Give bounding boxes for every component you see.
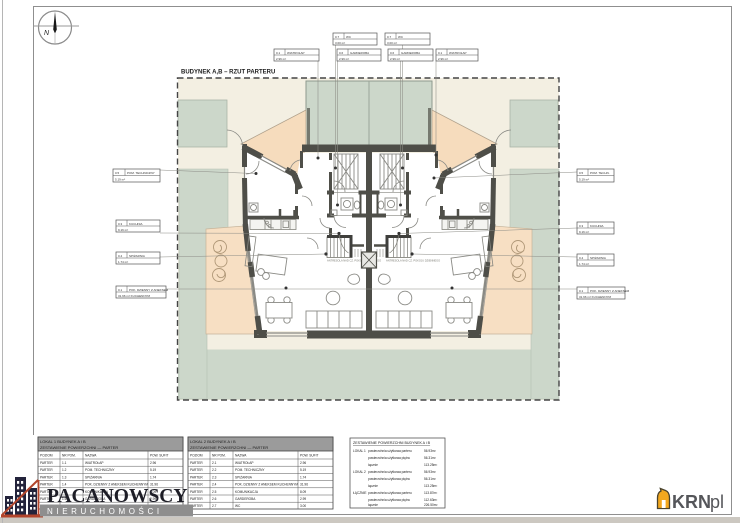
svg-text:ŁĄCZNIE: ŁĄCZNIE bbox=[353, 491, 366, 495]
svg-text:226.50m²: 226.50m² bbox=[424, 503, 437, 507]
svg-text:SPIŻARNIA: SPIŻARNIA bbox=[85, 474, 103, 479]
svg-text:113.25m²: 113.25m² bbox=[424, 463, 437, 467]
svg-text:POM. TECHNICZNY: POM. TECHNICZNY bbox=[85, 468, 115, 472]
svg-text:KOMUNIKACJA: KOMUNIKACJA bbox=[235, 490, 259, 494]
svg-text:PARTER: PARTER bbox=[190, 461, 203, 465]
svg-text:1.2: 1.2 bbox=[62, 468, 67, 472]
svg-text:.pl: .pl bbox=[705, 492, 724, 512]
svg-text:113.87m²: 113.87m² bbox=[424, 491, 437, 495]
svg-text:KUCHNIA: KUCHNIA bbox=[590, 224, 604, 228]
svg-text:PARTER: PARTER bbox=[190, 468, 203, 472]
svg-text:2.4: 2.4 bbox=[212, 483, 217, 487]
svg-text:0.5: 0.5 bbox=[115, 171, 120, 175]
svg-text:2.6: 2.6 bbox=[212, 497, 217, 501]
svg-text:9.16 m²: 9.16 m² bbox=[118, 228, 128, 232]
svg-text:WIATROŁAP: WIATROŁAP bbox=[85, 461, 104, 465]
svg-text:0.3: 0.3 bbox=[579, 224, 584, 228]
svg-text:0.6: 0.6 bbox=[339, 51, 344, 55]
svg-text:KUCHNIA: KUCHNIA bbox=[129, 222, 143, 226]
svg-text:ZESTAWIENIE POWIERZCHNI — PART: ZESTAWIENIE POWIERZCHNI — PARTER bbox=[190, 445, 268, 450]
svg-text:WC: WC bbox=[398, 35, 404, 39]
svg-text:0.4: 0.4 bbox=[118, 254, 123, 258]
svg-text:9.16 m²: 9.16 m² bbox=[579, 230, 589, 234]
svg-text:LOKAL 1: LOKAL 1 bbox=[353, 449, 366, 453]
svg-text:56.31m²: 56.31m² bbox=[424, 477, 436, 481]
svg-text:5.19 m²: 5.19 m² bbox=[115, 178, 125, 182]
svg-text:PARTER: PARTER bbox=[40, 475, 53, 479]
svg-text:powierzchnia użytkowa piętra: powierzchnia użytkowa piętra bbox=[368, 456, 410, 460]
svg-text:56.93m²: 56.93m² bbox=[424, 449, 436, 453]
svg-text:NIERUCHOMOŚCI: NIERUCHOMOŚCI bbox=[47, 507, 163, 516]
svg-text:113.25m²: 113.25m² bbox=[424, 484, 437, 488]
svg-text:łącznie: łącznie bbox=[368, 503, 378, 507]
svg-text:powierzchnia użytkowa piętra: powierzchnia użytkowa piętra bbox=[368, 477, 410, 481]
svg-text:POW. SUFIT: POW. SUFIT bbox=[150, 454, 168, 458]
svg-text:POM. TECHNICZNY: POM. TECHNICZNY bbox=[127, 171, 155, 175]
svg-text:5.19 m²: 5.19 m² bbox=[579, 178, 589, 182]
svg-text:PARTER: PARTER bbox=[40, 468, 53, 472]
svg-text:PARTER: PARTER bbox=[40, 461, 53, 465]
svg-text:2.5: 2.5 bbox=[212, 490, 217, 494]
svg-text:łącznie: łącznie bbox=[368, 484, 378, 488]
svg-text:SPIŻARNIA: SPIŻARNIA bbox=[235, 474, 253, 479]
svg-text:PARTER: PARTER bbox=[190, 490, 203, 494]
svg-text:56.31m²: 56.31m² bbox=[424, 456, 436, 460]
svg-text:2.96 m²: 2.96 m² bbox=[438, 57, 448, 61]
svg-text:WC: WC bbox=[346, 35, 352, 39]
svg-text:LOKAL 2 BUDYNEK A i B: LOKAL 2 BUDYNEK A i B bbox=[190, 439, 236, 444]
svg-text:PACANOWSCY: PACANOWSCY bbox=[47, 486, 187, 507]
svg-text:0.1: 0.1 bbox=[276, 51, 281, 55]
svg-text:0.3: 0.3 bbox=[118, 222, 123, 226]
svg-text:POZIOM: POZIOM bbox=[40, 454, 53, 458]
svg-text:POK. DZIENNY Z ANEKSEM: POK. DZIENNY Z ANEKSEM bbox=[129, 288, 169, 292]
svg-text:3.00 m²: 3.00 m² bbox=[387, 41, 397, 45]
svg-text:NR POM.: NR POM. bbox=[212, 454, 226, 458]
svg-text:powierzchnia użytkowa parteru: powierzchnia użytkowa parteru bbox=[368, 449, 412, 453]
svg-text:0.7: 0.7 bbox=[387, 35, 392, 39]
svg-text:2.3: 2.3 bbox=[212, 475, 217, 479]
svg-text:5.19: 5.19 bbox=[150, 468, 156, 472]
svg-text:NR POM.: NR POM. bbox=[62, 454, 76, 458]
svg-text:LOKAL 1 BUDYNEK A i B: LOKAL 1 BUDYNEK A i B bbox=[40, 439, 86, 444]
svg-text:BUDYNEK A,B – RZUT PARTERU: BUDYNEK A,B – RZUT PARTERU bbox=[181, 70, 275, 76]
svg-text:112.63m²: 112.63m² bbox=[424, 498, 437, 502]
svg-text:1.74: 1.74 bbox=[150, 475, 156, 479]
svg-text:0.4: 0.4 bbox=[579, 256, 584, 260]
svg-text:2.96 m²: 2.96 m² bbox=[276, 57, 286, 61]
svg-text:NAZWA: NAZWA bbox=[85, 454, 97, 458]
svg-text:POK. DZIENNY Z ANEKSEM: POK. DZIENNY Z ANEKSEM bbox=[590, 289, 630, 293]
svg-text:0.1: 0.1 bbox=[579, 289, 584, 293]
svg-text:1.74 m²: 1.74 m² bbox=[118, 260, 128, 264]
svg-text:POK. DZIENNY Z ANEKSEM KUCHENN: POK. DZIENNY Z ANEKSEM KUCHENNYM bbox=[235, 483, 298, 487]
svg-text:31.96 m² KUCHENNYM: 31.96 m² KUCHENNYM bbox=[118, 294, 151, 298]
svg-text:WC: WC bbox=[235, 504, 241, 508]
svg-text:PARTER: PARTER bbox=[190, 475, 203, 479]
svg-text:1.3: 1.3 bbox=[62, 475, 67, 479]
svg-text:3.00 m²: 3.00 m² bbox=[335, 41, 345, 45]
svg-text:0.1: 0.1 bbox=[438, 51, 443, 55]
svg-text:GARDEROBA: GARDEROBA bbox=[235, 497, 256, 501]
svg-text:0.6: 0.6 bbox=[390, 51, 395, 55]
svg-text:1.1: 1.1 bbox=[62, 461, 67, 465]
svg-text:POZIOM: POZIOM bbox=[190, 454, 203, 458]
svg-text:LOKAL 2: LOKAL 2 bbox=[353, 470, 366, 474]
svg-text:GARDEROBA: GARDEROBA bbox=[350, 51, 369, 55]
svg-text:0.1: 0.1 bbox=[118, 288, 123, 292]
svg-text:2.99 m²: 2.99 m² bbox=[390, 57, 400, 61]
svg-text:powierzchnia użytkowa parteru: powierzchnia użytkowa parteru bbox=[368, 470, 412, 474]
svg-text:WIATROŁAP: WIATROŁAP bbox=[235, 461, 254, 465]
svg-text:łącznie: łącznie bbox=[368, 463, 378, 467]
svg-text:POM. TECHNICZNY: POM. TECHNICZNY bbox=[235, 468, 265, 472]
svg-text:GARDEROBA: GARDEROBA bbox=[401, 51, 420, 55]
svg-text:powierzchnia użytkowa parteru: powierzchnia użytkowa parteru bbox=[368, 491, 412, 495]
svg-text:ANTRESOLA NAD CZ. POKOJU DZIEN: ANTRESOLA NAD CZ. POKOJU DZIENNEGO bbox=[386, 259, 440, 263]
svg-text:0.7: 0.7 bbox=[335, 35, 340, 39]
svg-text:2.99: 2.99 bbox=[300, 497, 306, 501]
svg-text:8.09: 8.09 bbox=[300, 490, 306, 494]
svg-text:PARTER: PARTER bbox=[190, 497, 203, 501]
svg-text:2.1: 2.1 bbox=[212, 461, 217, 465]
svg-text:WIATROŁAP: WIATROŁAP bbox=[449, 51, 466, 55]
svg-text:5.19: 5.19 bbox=[300, 468, 306, 472]
svg-text:2.96: 2.96 bbox=[150, 461, 156, 465]
svg-text:POM. TECHN.: POM. TECHN. bbox=[590, 171, 610, 175]
svg-text:POW. SUFIT: POW. SUFIT bbox=[300, 454, 318, 458]
svg-text:2.2: 2.2 bbox=[212, 468, 217, 472]
svg-text:1.74: 1.74 bbox=[300, 475, 306, 479]
svg-text:SPIŻARNIA: SPIŻARNIA bbox=[129, 253, 145, 258]
svg-text:2.96: 2.96 bbox=[300, 461, 306, 465]
svg-text:56.93m²: 56.93m² bbox=[424, 470, 436, 474]
svg-text:ZESTAWIENIE POWIERZCHNI BUDYNE: ZESTAWIENIE POWIERZCHNI BUDYNEK A i B bbox=[353, 441, 431, 445]
svg-text:31.96: 31.96 bbox=[300, 483, 308, 487]
svg-text:ZESTAWIENIE POWIERZCHNI — PART: ZESTAWIENIE POWIERZCHNI — PARTER bbox=[40, 445, 118, 450]
svg-text:powierzchnia użytkowa piętra: powierzchnia użytkowa piętra bbox=[368, 498, 410, 502]
svg-text:SPIŻARNIA: SPIŻARNIA bbox=[590, 255, 606, 260]
svg-text:WIATROŁAP: WIATROŁAP bbox=[287, 51, 304, 55]
svg-text:1.74 m²: 1.74 m² bbox=[579, 262, 589, 266]
svg-text:NAZWA: NAZWA bbox=[235, 454, 247, 458]
svg-text:PARTER: PARTER bbox=[190, 483, 203, 487]
svg-text:2.99 m²: 2.99 m² bbox=[339, 57, 349, 61]
svg-text:3.00: 3.00 bbox=[300, 504, 306, 508]
svg-text:0.5: 0.5 bbox=[579, 171, 584, 175]
svg-text:31.96 m² KUCHENNYM: 31.96 m² KUCHENNYM bbox=[579, 295, 612, 299]
svg-text:2.7: 2.7 bbox=[212, 504, 217, 508]
